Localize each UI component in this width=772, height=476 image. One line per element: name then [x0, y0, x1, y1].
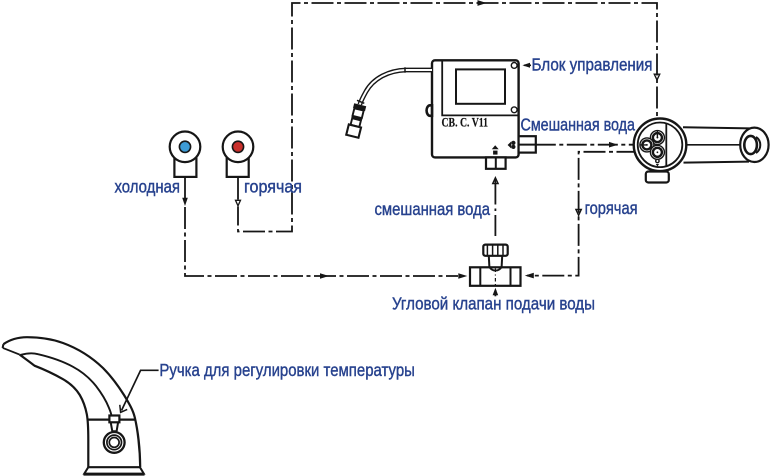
svg-text:горячая: горячая	[585, 198, 638, 218]
svg-text:Смешанная вода: Смешанная вода	[521, 114, 636, 134]
svg-text:CB. C. V11: CB. C. V11	[442, 115, 489, 129]
svg-text:холодная: холодная	[115, 177, 181, 197]
svg-text:Ручка для регулировки температ: Ручка для регулировки температуры	[159, 360, 415, 380]
svg-text:горячая: горячая	[244, 177, 302, 197]
svg-text:Блок управления: Блок управления	[532, 55, 653, 75]
svg-text:смешанная вода: смешанная вода	[375, 199, 491, 219]
svg-text:Угловой клапан подачи воды: Угловой клапан подачи воды	[392, 293, 595, 313]
